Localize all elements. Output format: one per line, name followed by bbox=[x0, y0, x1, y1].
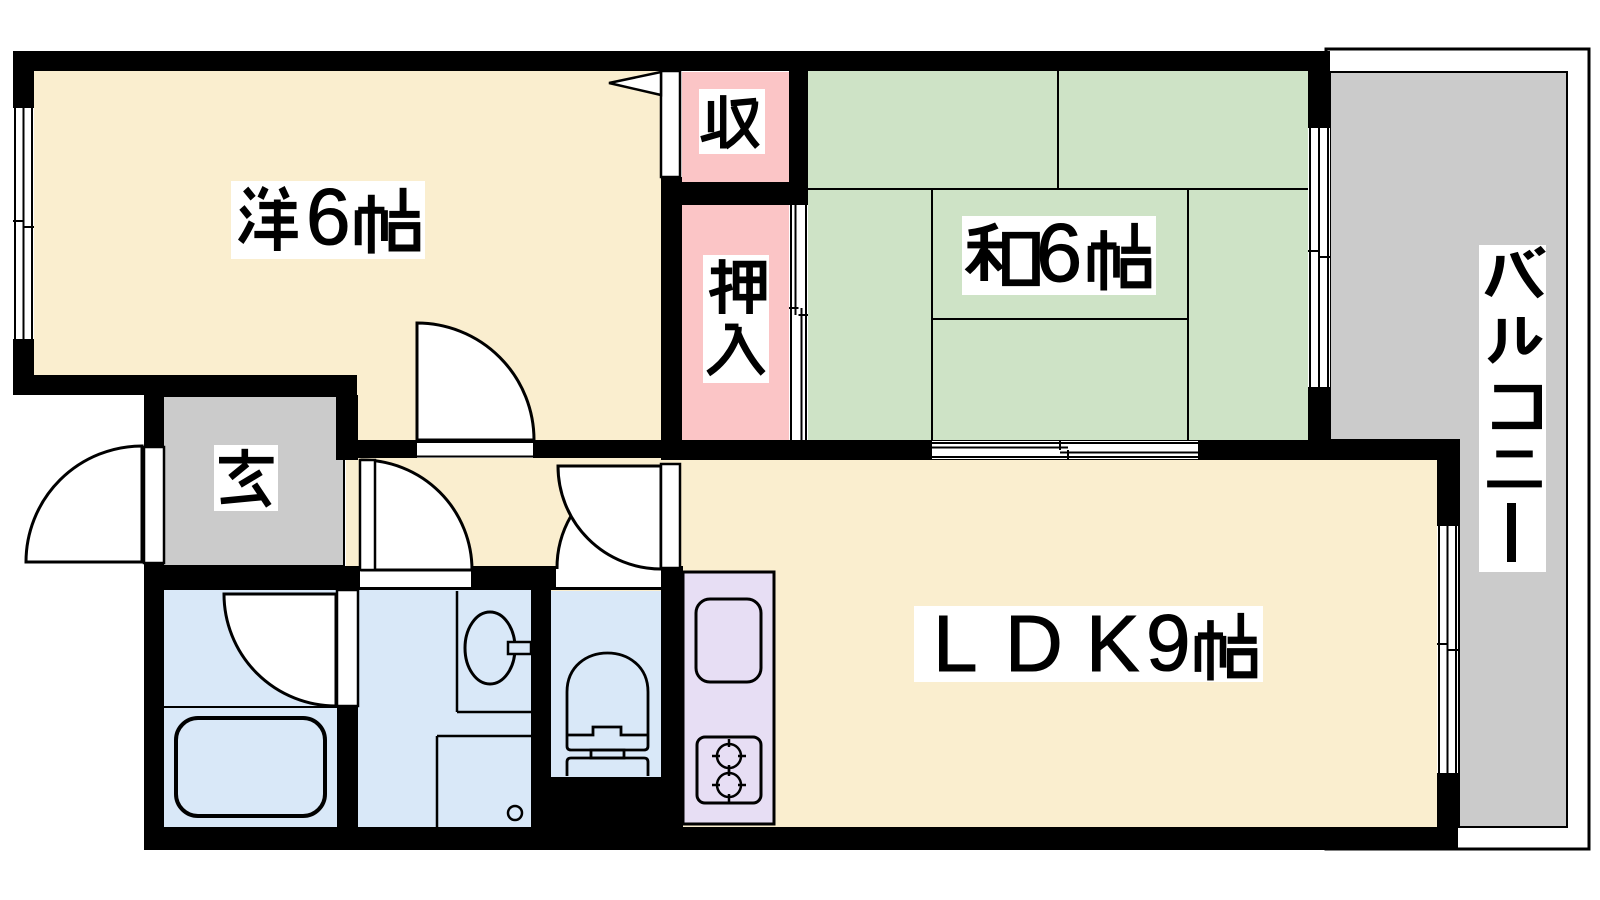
svg-text:6: 6 bbox=[1036, 206, 1082, 299]
svg-text:9: 9 bbox=[1146, 598, 1191, 687]
svg-text:D: D bbox=[1005, 599, 1063, 688]
svg-text:L: L bbox=[933, 599, 978, 688]
svg-text:6: 6 bbox=[306, 172, 351, 261]
svg-text:K: K bbox=[1086, 599, 1139, 688]
